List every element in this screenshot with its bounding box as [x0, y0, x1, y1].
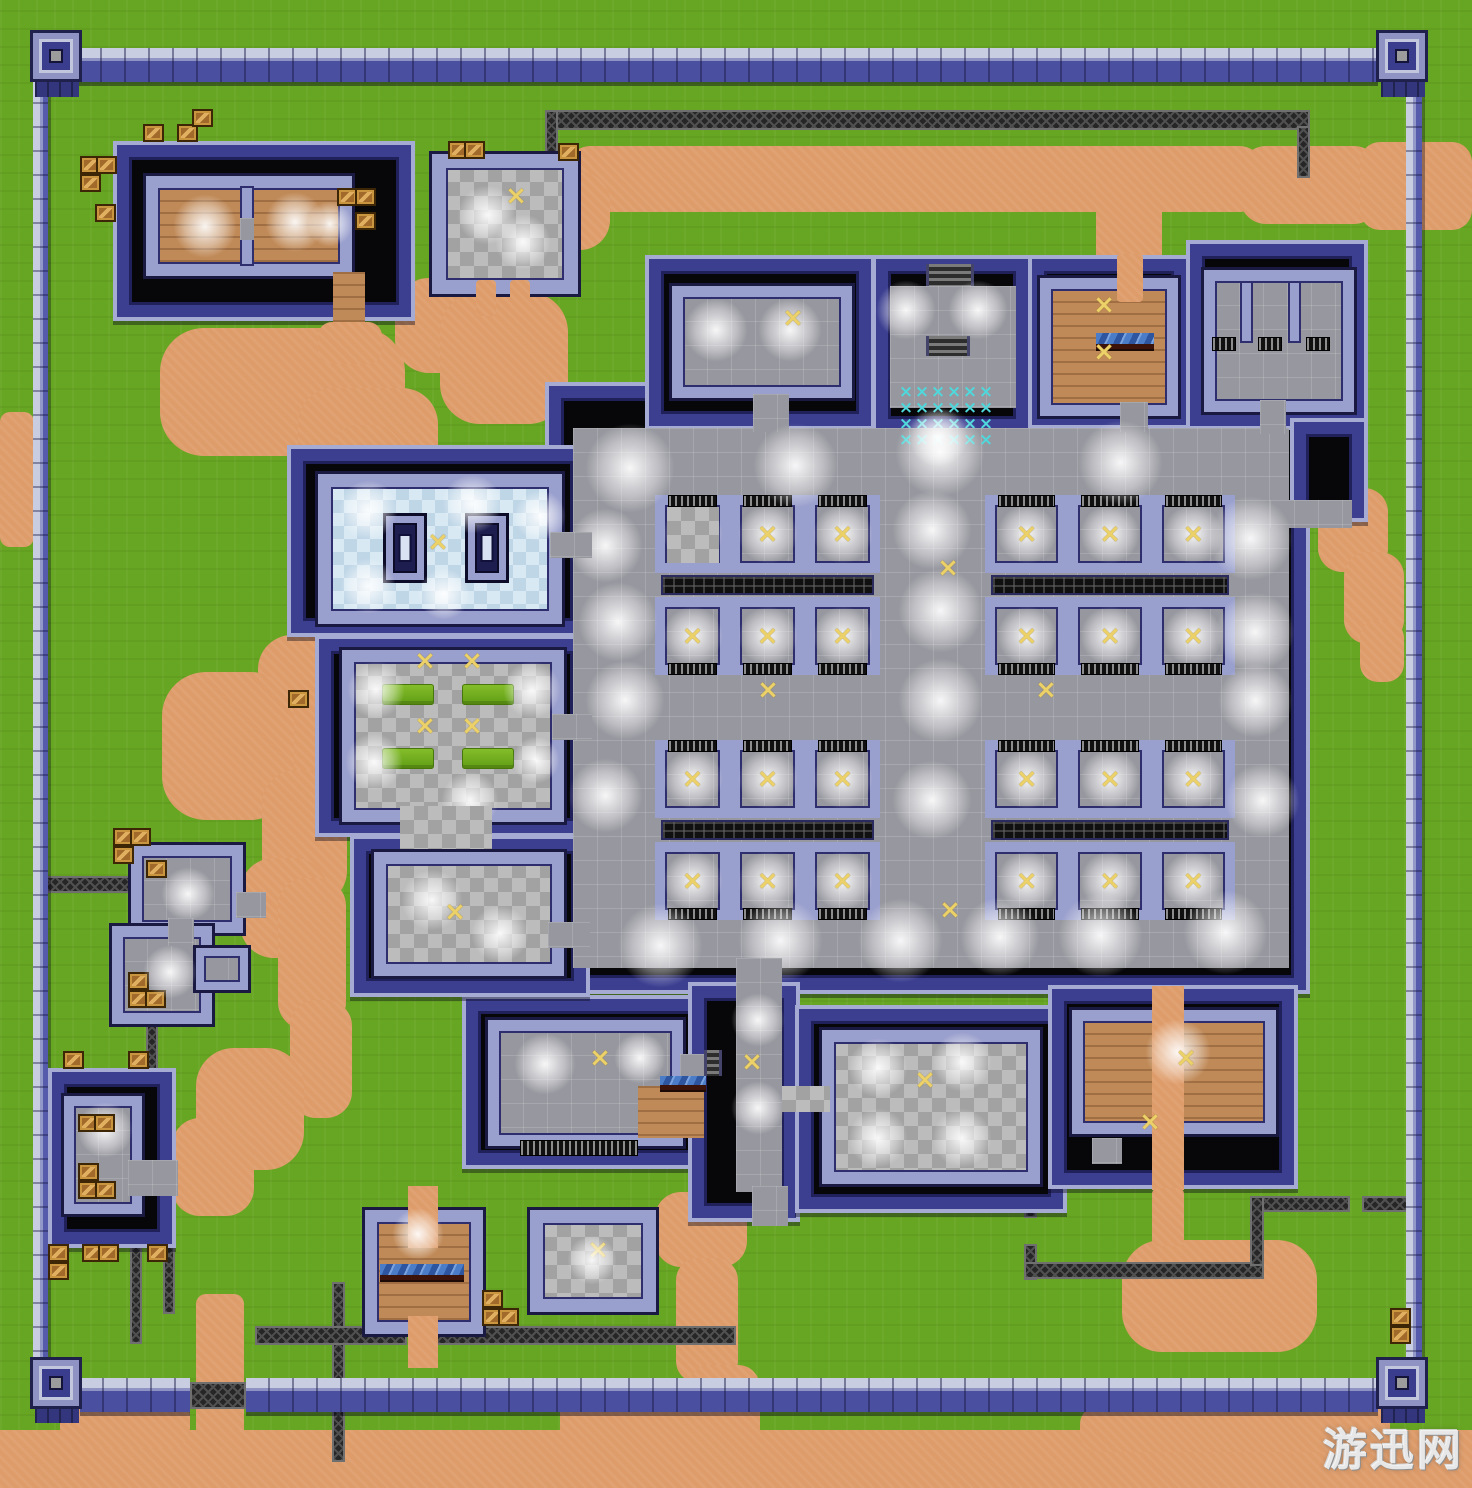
- item-marker: ×: [1016, 521, 1038, 547]
- dirt-path: [408, 1316, 438, 1368]
- light-glow: [471, 905, 529, 963]
- item-marker: ×: [1016, 766, 1038, 792]
- crate: [48, 1262, 69, 1280]
- light-glow: [568, 758, 643, 833]
- item-marker: ×: [505, 183, 527, 209]
- item-marker: ×: [1093, 339, 1115, 365]
- light-glow: [512, 736, 560, 784]
- dirt-path: [172, 1118, 254, 1216]
- dirt-path: [1152, 986, 1184, 1190]
- wall-base: [35, 1409, 79, 1423]
- crate: [558, 143, 579, 161]
- cell-block: ××××××: [985, 740, 1235, 920]
- crate: [128, 1051, 149, 1069]
- light-glow: [1078, 420, 1163, 505]
- chain-fence: [1024, 1262, 1264, 1279]
- light-glow: [345, 733, 403, 791]
- light-glow: [892, 760, 972, 840]
- light-glow: [614, 1032, 666, 1084]
- item-marker: ×: [782, 305, 804, 331]
- cell-block: ××××××: [985, 495, 1235, 675]
- floor-patch: [667, 507, 719, 563]
- cell-bars: [1212, 337, 1236, 351]
- cell-bars: [818, 908, 867, 920]
- item-marker: ×: [682, 623, 704, 649]
- crate: [48, 1244, 69, 1262]
- floor-patch: [550, 532, 592, 558]
- cell-bars: [998, 495, 1055, 507]
- item-marker: ×: [757, 766, 779, 792]
- watchtower: [1376, 1357, 1428, 1409]
- light-glow: [340, 558, 396, 614]
- crate: [192, 109, 213, 127]
- light-glow: [338, 480, 398, 540]
- dirt-path: [1122, 1240, 1317, 1352]
- item-marker: ×: [1182, 623, 1204, 649]
- dirt-path: [510, 280, 530, 316]
- cell-bars: [1306, 337, 1330, 351]
- light-glow: [347, 661, 405, 719]
- room: [374, 852, 564, 976]
- light-glow: [503, 661, 561, 719]
- crate: [1390, 1326, 1411, 1344]
- light-glow: [418, 568, 470, 620]
- crate: [464, 141, 485, 159]
- light-glow: [1058, 893, 1143, 978]
- floor-patch: [548, 922, 590, 948]
- cell-bars: [998, 740, 1055, 752]
- site-watermark: 游迅网: [1323, 1414, 1464, 1478]
- floor-patch: [782, 1086, 830, 1112]
- light-glow: [876, 280, 936, 340]
- crate: [130, 828, 151, 846]
- cell-bars: [668, 740, 717, 752]
- dirt-path: [196, 1294, 244, 1446]
- floor-patch: [1260, 400, 1286, 434]
- chain-fence: [130, 1242, 142, 1344]
- chain-fence: [46, 876, 134, 893]
- stairs: [704, 1050, 722, 1076]
- item-marker: ×: [1099, 868, 1121, 894]
- item-marker: ×: [1182, 521, 1204, 547]
- item-marker: ×: [414, 648, 436, 674]
- floor-patch: [240, 218, 254, 240]
- watchtower: [1376, 30, 1428, 82]
- light-glow: [173, 194, 237, 258]
- item-marker: ×: [682, 868, 704, 894]
- crate: [80, 174, 101, 192]
- floor-patch: [400, 806, 492, 852]
- crate: [98, 1244, 119, 1262]
- cell-bars: [818, 740, 867, 752]
- item-marker: ×: [1182, 868, 1204, 894]
- item-marker: ×: [1035, 677, 1057, 703]
- light-glow: [143, 945, 197, 999]
- light-glow: [731, 993, 785, 1047]
- inner-wall: [1288, 281, 1301, 343]
- chain-fence: [332, 1282, 345, 1462]
- light-glow: [392, 1208, 444, 1260]
- inner-wall: [1240, 281, 1253, 343]
- light-glow: [618, 903, 703, 988]
- item-marker: ×: [832, 868, 854, 894]
- light-glow: [585, 660, 665, 740]
- crate: [482, 1290, 503, 1308]
- item-marker: ×: [832, 521, 854, 547]
- cell-bars: [668, 495, 717, 507]
- crate: [498, 1308, 519, 1326]
- item-marker: ×: [757, 677, 779, 703]
- perimeter-wall: [1406, 80, 1422, 1360]
- light-glow: [684, 298, 748, 362]
- light-glow: [753, 423, 838, 508]
- crate: [96, 156, 117, 174]
- crate: [1390, 1308, 1411, 1326]
- item-marker: ×: [939, 897, 961, 923]
- item-marker: ×: [682, 766, 704, 792]
- dirt-path: [476, 280, 496, 316]
- cellblock-corridor: [991, 820, 1229, 840]
- floor-patch: [552, 714, 592, 740]
- perimeter-wall: [80, 1378, 190, 1412]
- floor-patch: [128, 1160, 178, 1196]
- item-marker: ×: [741, 1049, 763, 1075]
- cellblock-corridor: [661, 575, 874, 595]
- dirt-path: [1117, 254, 1143, 302]
- cellblock-corridor: [991, 575, 1229, 595]
- cell-bars: [520, 1140, 638, 1156]
- item-marker: ×: [1099, 623, 1121, 649]
- cell-bars: [1081, 740, 1138, 752]
- item-marker: ×: [1016, 868, 1038, 894]
- item-marker: ×: [1139, 1109, 1161, 1135]
- crate: [355, 188, 376, 206]
- wall-base: [1381, 82, 1425, 97]
- item-marker: ×: [757, 868, 779, 894]
- light-glow: [932, 1032, 992, 1092]
- chain-fence: [1262, 1196, 1350, 1212]
- perimeter-wall: [246, 1378, 1378, 1412]
- crate: [355, 212, 376, 230]
- perimeter-wall: [78, 48, 1378, 82]
- light-glow: [932, 1108, 992, 1168]
- cell-bars: [743, 740, 792, 752]
- cell-bars: [1165, 495, 1222, 507]
- light-glow: [1225, 763, 1300, 838]
- light-glow: [1218, 663, 1293, 738]
- prison-compound-map: 游迅网 ××××××××××××××××××××××××××××××××××××…: [0, 0, 1472, 1488]
- light-glow: [858, 898, 943, 983]
- room: [196, 948, 248, 990]
- crate: [143, 124, 164, 142]
- light-glow: [898, 658, 983, 743]
- wall-base: [35, 82, 79, 97]
- counter: [380, 1264, 464, 1280]
- cell-bars: [743, 663, 792, 675]
- item-marker: ×: [1016, 623, 1038, 649]
- watchtower: [30, 1357, 82, 1409]
- item-marker: ×: [832, 766, 854, 792]
- item-marker: ×: [589, 1045, 611, 1071]
- item-marker: ×: [757, 521, 779, 547]
- crate: [95, 1181, 116, 1199]
- crate: [63, 1051, 84, 1069]
- light-glow: [892, 490, 972, 570]
- light-glow: [161, 867, 215, 921]
- item-marker: ×: [427, 529, 449, 555]
- dirt-path: [1152, 1188, 1184, 1246]
- perimeter-wall: [33, 80, 48, 1360]
- floor-patch: [752, 1186, 788, 1226]
- item-marker: ×: [414, 713, 436, 739]
- light-glow: [731, 1081, 785, 1135]
- item-marker: ×: [832, 623, 854, 649]
- light-glow: [567, 1235, 617, 1285]
- watchtower: [30, 30, 82, 82]
- item-marker: ×: [937, 555, 959, 581]
- cellblock-corridor: [661, 820, 874, 840]
- floor-patch: [236, 892, 266, 918]
- cell-bars: [1081, 663, 1138, 675]
- cell-bars: [668, 663, 717, 675]
- chain-fence: [545, 110, 1310, 130]
- counter: [660, 1076, 706, 1090]
- light-glow: [442, 474, 502, 534]
- light-glow: [495, 214, 551, 270]
- light-glow: [895, 407, 985, 497]
- crate: [288, 690, 309, 708]
- chain-fence: [1297, 126, 1310, 178]
- cell-bars: [1165, 740, 1222, 752]
- light-glow: [848, 1108, 908, 1168]
- crate: [78, 1163, 99, 1181]
- dirt-path: [1360, 620, 1404, 682]
- item-marker: ×: [461, 713, 483, 739]
- chain-fence: [190, 1382, 246, 1409]
- crate: [146, 860, 167, 878]
- light-glow: [1208, 496, 1293, 581]
- floor-patch: [1092, 1138, 1122, 1164]
- item-marker: ×: [757, 623, 779, 649]
- crate: [95, 204, 116, 222]
- item-marker: ×: [1182, 766, 1204, 792]
- cell-block: ××××××: [655, 740, 880, 920]
- dirt-path: [0, 412, 34, 547]
- item-marker: ×: [1099, 766, 1121, 792]
- light-glow: [1183, 890, 1268, 975]
- light-glow: [848, 1038, 908, 1098]
- item-marker: ×: [1099, 521, 1121, 547]
- item-marker: ×: [914, 1067, 936, 1093]
- floor-patch: [168, 918, 194, 946]
- cell-bars: [1258, 337, 1282, 351]
- light-glow: [1215, 592, 1295, 672]
- crate: [113, 846, 134, 864]
- dirt-path: [318, 322, 382, 364]
- light-glow: [578, 582, 658, 662]
- garden-bed: [462, 748, 514, 769]
- chain-fence: [1362, 1196, 1408, 1212]
- floor-patch: [638, 1086, 704, 1138]
- stairs: [926, 336, 970, 356]
- light-glow: [514, 1033, 576, 1095]
- item-marker: ×: [461, 648, 483, 674]
- cell-bars: [818, 663, 867, 675]
- light-glow: [960, 897, 1040, 977]
- item-marker: ×: [444, 899, 466, 925]
- cell-bars: [1165, 663, 1222, 675]
- light-glow: [948, 280, 1008, 340]
- light-glow: [585, 423, 675, 513]
- dirt-path: [1240, 146, 1380, 224]
- crate: [94, 1114, 115, 1132]
- crate: [147, 1244, 168, 1262]
- item-marker: ×: [1093, 292, 1115, 318]
- cell-bars: [998, 663, 1055, 675]
- light-glow: [307, 201, 353, 247]
- item-marker: ×: [1175, 1045, 1197, 1071]
- cell-bars: [818, 495, 867, 507]
